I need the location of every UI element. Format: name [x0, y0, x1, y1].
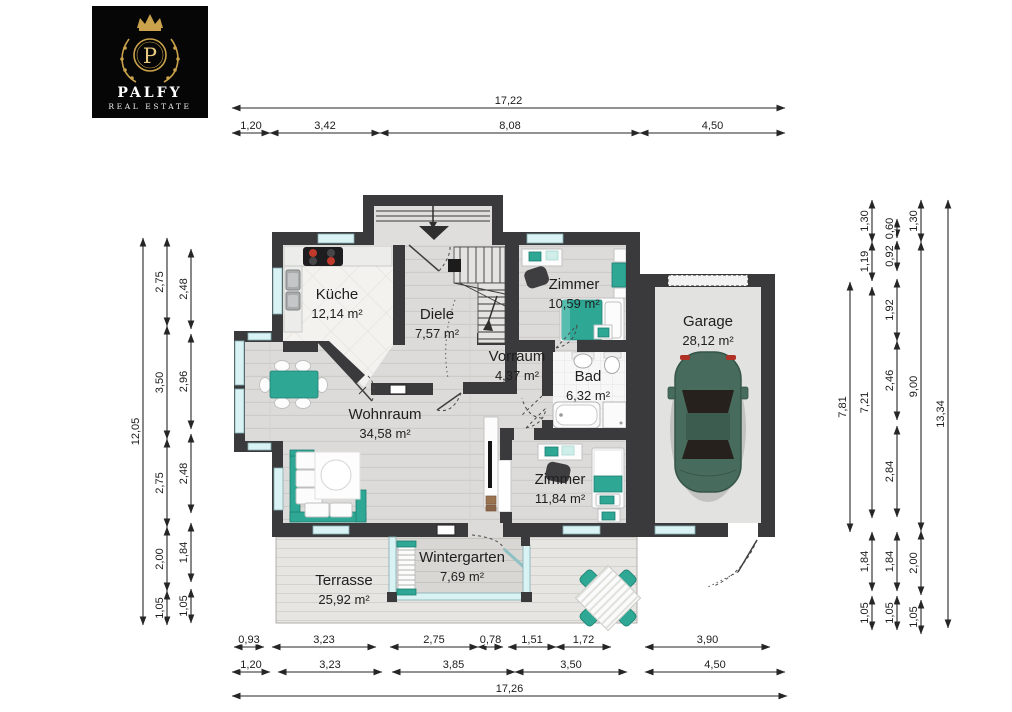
dimension-label: 3,50: [560, 659, 581, 671]
room-area-zimmer-1: 10,59 m²: [548, 296, 600, 311]
room-label-diele: Diele: [420, 306, 454, 323]
dimension-label: 1,05: [908, 606, 920, 627]
dimension-label: 0,93: [238, 634, 259, 646]
dimension-label: 0,60: [884, 218, 896, 239]
glass-wall: [389, 537, 396, 595]
car: [668, 352, 748, 502]
dimension-label: 1,84: [859, 551, 871, 572]
dimension-label: 4,50: [704, 659, 725, 671]
dimension-label: 8,08: [499, 120, 520, 132]
dimension-label: 2,46: [884, 370, 896, 391]
wardrobe: [612, 263, 626, 287]
dimension-label: 0,78: [480, 634, 501, 646]
room-label-zimmer-1: Zimmer: [549, 276, 600, 293]
room-area-zimmer-2: 11,84 m²: [535, 491, 586, 506]
room-area-wintergarten: 7,69 m²: [440, 569, 485, 584]
dimension-label: 1,05: [154, 597, 166, 618]
dimension-label: 2,00: [908, 552, 920, 573]
dimension-label: 4,50: [702, 120, 723, 132]
room-area-diele: 7,57 m²: [415, 326, 460, 341]
window: [563, 526, 600, 534]
dimension-label: 17,22: [495, 95, 523, 107]
dimension-label: 7,21: [859, 392, 871, 413]
window: [235, 389, 244, 433]
room-label-bad: Bad: [575, 368, 602, 385]
stove: [303, 247, 343, 266]
room-area-bad: 6,32 m²: [566, 388, 611, 403]
desk: [538, 444, 582, 460]
garage-door-opening: [728, 523, 758, 537]
shower: [603, 402, 626, 428]
dimension-label: 2,84: [884, 461, 896, 482]
window: [318, 234, 354, 243]
garage-window: [655, 526, 695, 534]
room-label-zimmer-2: Zimmer: [535, 471, 586, 488]
dimension-label: 1,19: [859, 251, 871, 272]
dimension-label: 1,20: [240, 659, 261, 671]
room-label-vorraum: Vorraum: [489, 348, 546, 365]
dimension-label: 1,05: [178, 595, 190, 616]
room-area-kueche: 12,14 m²: [311, 306, 363, 321]
dimension-label: 2,75: [154, 271, 166, 292]
dimension-label: 12,05: [130, 418, 142, 446]
dimension-label: 3,85: [443, 659, 464, 671]
dimension-label: 1,92: [884, 299, 896, 320]
room-area-terrasse: 25,92 m²: [318, 592, 370, 607]
window: [527, 234, 563, 243]
room-label-kueche: Küche: [316, 286, 359, 303]
dimension-label: 9,00: [908, 376, 920, 397]
dimension-label: 2,75: [423, 634, 444, 646]
toilet: [605, 357, 620, 374]
room-area-garage: 28,12 m²: [682, 333, 734, 348]
dimension-label: 1,51: [521, 634, 542, 646]
dimension-label: 2,48: [178, 463, 190, 484]
dimension-label: 1,20: [240, 120, 261, 132]
wall-niche: [437, 525, 455, 535]
dining-table: [270, 371, 318, 398]
window: [248, 443, 271, 450]
room-area-vorraum: 4,37 m²: [495, 368, 540, 383]
bench: [398, 545, 415, 591]
dimension-label: 2,48: [178, 278, 190, 299]
dimension-label: 1,84: [884, 551, 896, 572]
dimension-label: 13,34: [935, 400, 947, 428]
dimension-label: 1,05: [884, 602, 896, 623]
room-label-wintergarten: Wintergarten: [419, 549, 505, 566]
dimension-label: 3,23: [319, 659, 340, 671]
dimension-label: 0,92: [884, 245, 896, 266]
dimension-label: 3,50: [154, 372, 166, 393]
room-label-garage: Garage: [683, 313, 733, 330]
dimension-label: 2,96: [178, 371, 190, 392]
dimension-label: 2,00: [154, 548, 166, 569]
window: [274, 468, 283, 510]
glass-wall: [523, 545, 530, 595]
window: [273, 268, 282, 314]
dimension-label: 1,72: [573, 634, 594, 646]
room-label-terrasse: Terrasse: [315, 572, 373, 589]
newel-post: [448, 259, 461, 272]
dimension-label: 3,23: [313, 634, 334, 646]
window: [313, 526, 349, 534]
room-label-wohnraum: Wohnraum: [348, 406, 421, 423]
dimension-label: 1,30: [908, 210, 920, 231]
pillow: [600, 496, 614, 504]
dimension-label: 3,42: [314, 120, 335, 132]
dimension-label: 2,75: [154, 472, 166, 493]
dimension-label: 17,26: [496, 683, 524, 695]
dimension-label: 1,30: [859, 210, 871, 231]
floor-plan: Küche12,14 m²Diele7,57 m²Zimmer10,59 m²V…: [0, 0, 1012, 712]
dimension-label: 1,05: [859, 602, 871, 623]
garage-door: [668, 275, 748, 286]
window: [248, 333, 271, 340]
floorplan-page: P PALFY REAL ESTATE: [0, 0, 1012, 712]
dimension-label: 7,81: [837, 396, 849, 417]
dimension-label: 3,90: [697, 634, 718, 646]
bath-sink: [574, 354, 592, 368]
dimension-label: 1,84: [178, 542, 190, 563]
tv: [488, 441, 492, 488]
sliding-door-panel: [498, 460, 511, 512]
window: [235, 341, 244, 385]
wall-niche: [390, 385, 406, 394]
room-area-wohnraum: 34,58 m²: [359, 426, 411, 441]
